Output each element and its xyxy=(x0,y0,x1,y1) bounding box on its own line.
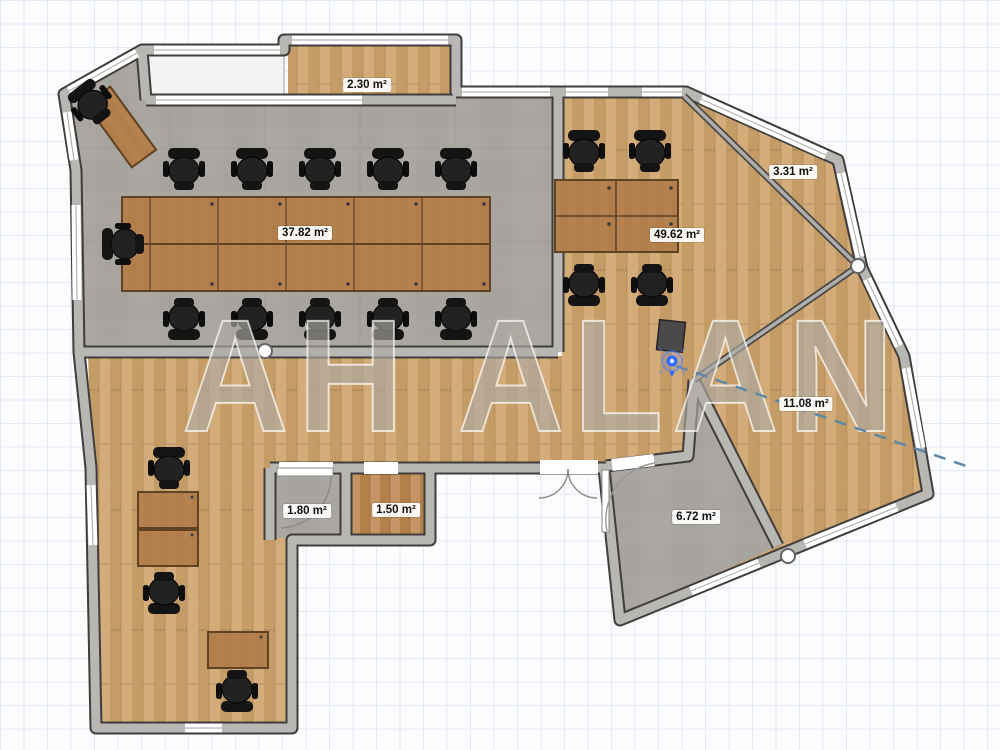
area-label-balcony[interactable]: 2.30 m² xyxy=(343,78,391,92)
desk[interactable] xyxy=(208,632,268,668)
desk[interactable] xyxy=(138,492,198,528)
floor-plan-drawing[interactable] xyxy=(0,0,1000,750)
area-label-wc[interactable]: 1.80 m² xyxy=(283,504,331,518)
door-leaf[interactable] xyxy=(277,468,333,476)
floor-terrace[interactable] xyxy=(146,54,284,98)
area-label-corner-nook[interactable]: 3.31 m² xyxy=(769,165,817,179)
wall-handle-icon[interactable] xyxy=(851,259,865,273)
cabinet[interactable] xyxy=(657,320,686,353)
wall-handle-icon[interactable] xyxy=(781,549,795,563)
floor-plan-canvas[interactable]: AH ALAN 2.30 m² 37.82 m² 49.62 m² 3.31 m… xyxy=(0,0,1000,750)
area-label-meeting-room[interactable]: 37.82 m² xyxy=(278,226,332,240)
area-label-right-wing[interactable]: 11.08 m² xyxy=(779,397,832,411)
area-label-entry-room[interactable]: 6.72 m² xyxy=(672,510,720,524)
conference-table[interactable] xyxy=(122,197,490,291)
area-label-open-office[interactable]: 49.62 m² xyxy=(650,228,704,242)
desk[interactable] xyxy=(138,530,198,566)
area-label-storage[interactable]: 1.50 m² xyxy=(372,503,420,517)
wall-handle-icon[interactable] xyxy=(258,344,272,358)
